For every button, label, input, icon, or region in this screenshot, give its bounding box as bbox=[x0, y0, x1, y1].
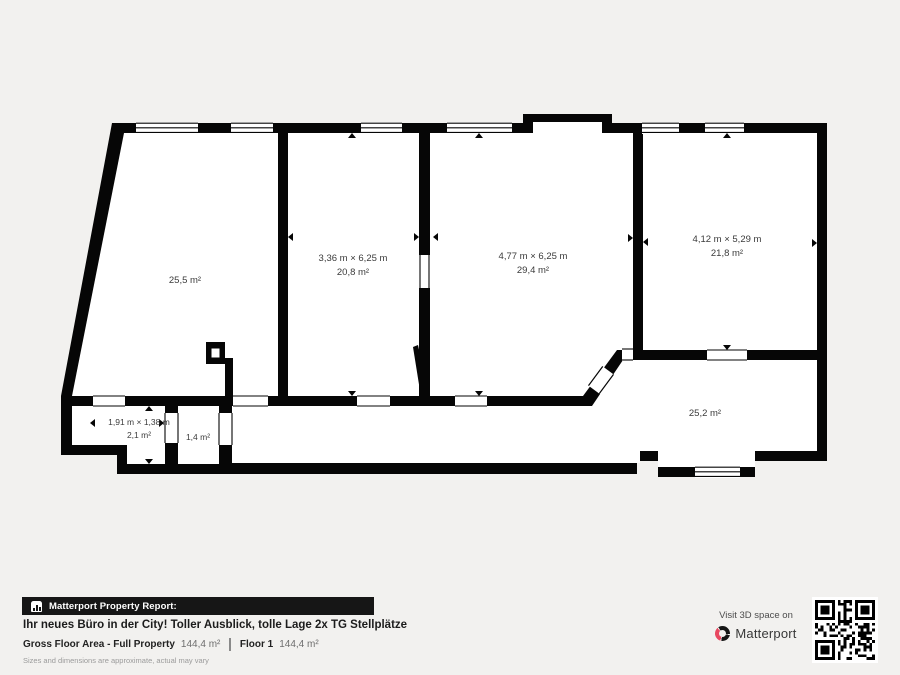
room-2-floor bbox=[288, 133, 419, 396]
door-opening bbox=[233, 395, 268, 407]
report-header-bar: Matterport Property Report: bbox=[22, 597, 374, 615]
room-3-dimensions-label: 4,77 m × 6,25 m bbox=[499, 251, 568, 262]
door-opening bbox=[218, 413, 233, 445]
door-opening bbox=[93, 395, 125, 407]
visit-3d-label: Visit 3D space on bbox=[700, 610, 812, 621]
area-stats: Gross Floor Area - Full Property 144,4 m… bbox=[23, 638, 319, 651]
gross-floor-area-label: Gross Floor Area - Full Property bbox=[23, 639, 175, 650]
room-4-area-label: 21,8 m² bbox=[711, 248, 743, 259]
small-room-1-dimensions-label: 1,91 m × 1,38 m bbox=[108, 417, 170, 427]
matterport-report-icon bbox=[31, 601, 42, 612]
qr-code bbox=[812, 597, 878, 663]
room-2-area-label: 20,8 m² bbox=[337, 267, 369, 278]
report-header-label: Matterport Property Report: bbox=[49, 601, 177, 612]
wall-stub bbox=[225, 358, 233, 400]
stats-divider bbox=[229, 638, 231, 651]
small-room-1-area-label: 2,1 m² bbox=[127, 430, 151, 440]
visit-3d-block: Visit 3D space on Matterport bbox=[700, 610, 812, 641]
matterport-logo-icon bbox=[715, 626, 730, 641]
floor-value: 144,4 m² bbox=[279, 639, 318, 650]
matterport-wordmark: Matterport bbox=[735, 626, 796, 641]
small-room-2-area-label: 1,4 m² bbox=[186, 432, 210, 442]
corridor-area-label: 25,2 m² bbox=[689, 408, 721, 419]
floor-label: Floor 1 bbox=[240, 639, 273, 650]
floor-plan: 25,5 m² 3,36 m × 6,25 m 20,8 m² 4,77 m ×… bbox=[0, 0, 900, 590]
door-opening bbox=[419, 255, 430, 288]
property-title: Ihr neues Büro in der City! Toller Ausbl… bbox=[23, 619, 583, 631]
room-4-dimensions-label: 4,12 m × 5,29 m bbox=[693, 234, 762, 245]
door-opening bbox=[622, 348, 633, 361]
door-opening bbox=[357, 395, 390, 407]
room-3-area-label: 29,4 m² bbox=[517, 265, 549, 276]
door-opening bbox=[455, 395, 487, 407]
room-1-area-label: 25,5 m² bbox=[169, 275, 201, 286]
gross-floor-area-value: 144,4 m² bbox=[181, 639, 220, 650]
matterport-brand: Matterport bbox=[700, 626, 812, 641]
door-opening bbox=[707, 349, 747, 361]
room-2-dimensions-label: 3,36 m × 6,25 m bbox=[319, 253, 388, 264]
column-core bbox=[212, 349, 220, 358]
disclaimer-text: Sizes and dimensions are approximate, ac… bbox=[23, 656, 209, 665]
